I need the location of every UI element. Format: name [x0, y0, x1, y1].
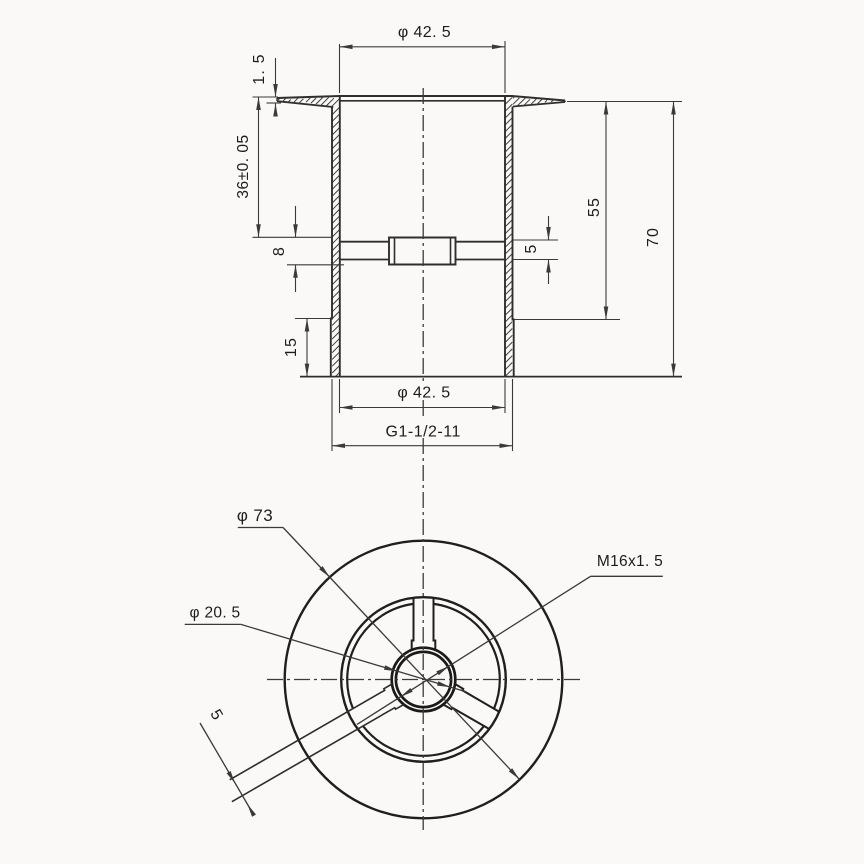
svg-text:1. 5: 1. 5 — [251, 53, 268, 85]
svg-text:φ 73: φ 73 — [237, 506, 273, 525]
svg-text:36±0. 05: 36±0. 05 — [235, 134, 252, 198]
svg-text:8: 8 — [271, 246, 288, 256]
svg-text:G1-1/2-11: G1-1/2-11 — [386, 424, 461, 441]
svg-text:70: 70 — [645, 227, 662, 247]
svg-text:5: 5 — [523, 243, 540, 253]
svg-text:M16x1. 5: M16x1. 5 — [597, 553, 663, 570]
svg-text:55: 55 — [586, 197, 603, 217]
svg-text:φ 42. 5: φ 42. 5 — [398, 24, 451, 41]
svg-text:φ 42. 5: φ 42. 5 — [397, 385, 450, 402]
svg-text:φ 20. 5: φ 20. 5 — [190, 605, 241, 622]
svg-text:15: 15 — [283, 337, 300, 357]
